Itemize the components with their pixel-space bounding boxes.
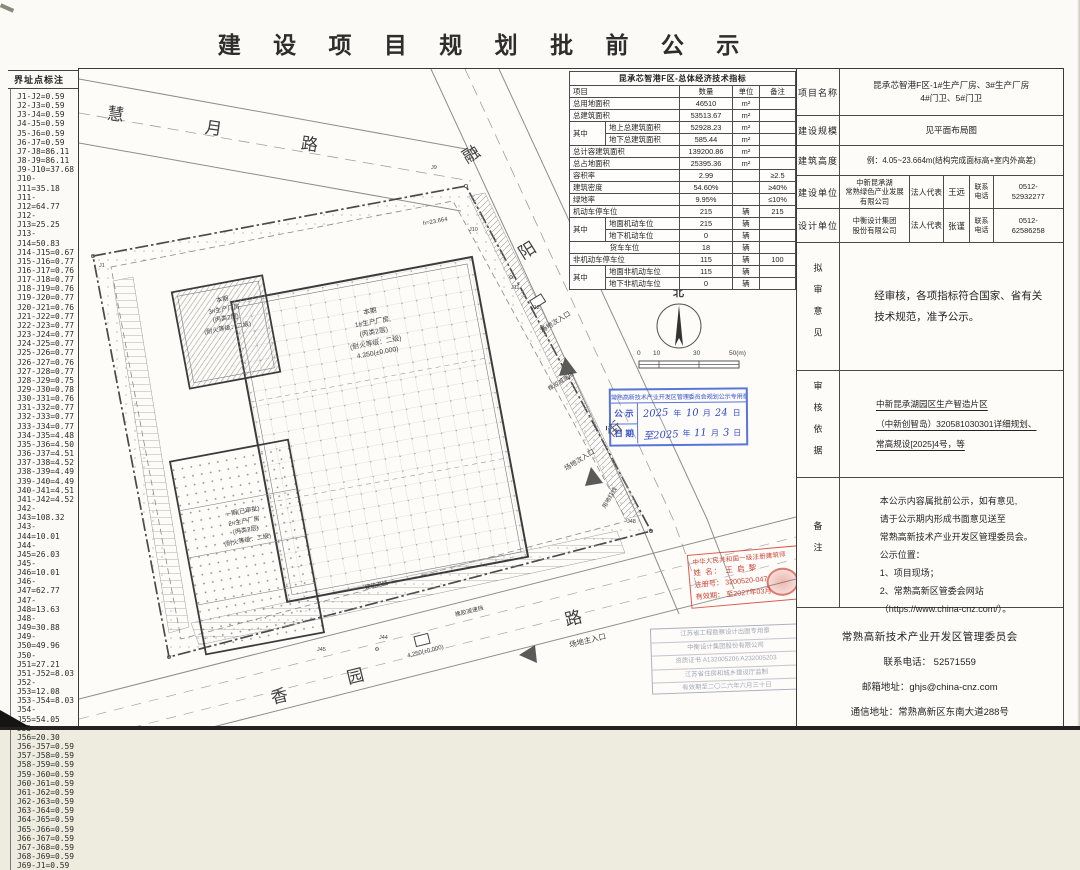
boundary-list-lines: J1-J2=0.59 J2-J3=0.59 J3-J4=0.59 J4-J5=0… <box>10 89 78 870</box>
boundary-point: J12 <box>531 305 540 311</box>
road-name-rongyang-jie: 阳 <box>515 238 540 264</box>
sheet-frame: 慧月路融阳街香园路北0103050(m)本期 1#生产厂房 (丙类2层) (耐火… <box>78 68 1064 730</box>
economic-indicator-table: 昆承芯智港F区-总体经济技术指标项目数量单位备注总用地面积46510m²总建筑面… <box>569 71 796 290</box>
eco-table-cell: 地下非机动车位 <box>605 278 679 290</box>
remark-text: 本公示内容属批前公示，如有意见, 请于公示期内形成书面意见送至 常熟高新技术产业… <box>840 478 1063 607</box>
setback-line-label: 建筑退线 <box>365 581 389 592</box>
speed-bump-label: 橡胶减速挡 <box>455 606 485 619</box>
scale-value: 见平面布局图 <box>840 116 1063 145</box>
eco-table-cell: 辆 <box>732 278 759 290</box>
eco-table-cell <box>759 242 795 254</box>
eco-table-cell <box>759 266 795 278</box>
eco-table-cell: 总占地面积 <box>569 158 679 170</box>
eco-table-cell: 机动车停车位 <box>569 206 679 218</box>
owner-label: 建设单位 <box>797 176 840 208</box>
road-name-xiangyuan-lu: 香 <box>269 685 290 708</box>
eco-table-cell: 其中 <box>569 266 605 290</box>
eco-table-cell: m² <box>732 146 759 158</box>
boundary-point: J48 <box>627 519 636 525</box>
eco-table-cell <box>759 110 795 122</box>
boundary-list-header: 界址点标注 <box>8 70 78 89</box>
eco-table-cell: 其中 <box>569 218 605 242</box>
opinion-label: 拟审意见 <box>797 243 840 370</box>
building-3-label: 本期 3#生产厂房 (丙类2层) (耐火等级：二级) <box>186 289 264 340</box>
eco-table-cell: 115 <box>679 266 732 278</box>
boundary-point: J44 <box>379 635 388 641</box>
eco-table-cell: 54.60% <box>679 182 732 194</box>
scanned-notice: { "title": "建 设 项 目 规 划 批 前 公 示", "bound… <box>0 0 1080 730</box>
eco-table-cell: 辆 <box>732 230 759 242</box>
opinion-text: 经审核，各项指标符合国家、省有关 技术规范，准予公示。 <box>840 243 1063 370</box>
eco-table-cell: 215 <box>679 206 732 218</box>
row-footer-contact: 常熟高新技术产业开发区管理委员会 联系电话： 52571559 邮箱地址：ghj… <box>797 608 1063 729</box>
eco-table-cell: 总计容建筑面积 <box>569 146 679 158</box>
project-name-label: 项目名称 <box>797 69 840 115</box>
eco-table-cell: m² <box>732 98 759 110</box>
road-name-rongyang-jie: 融 <box>459 142 484 168</box>
eco-table-cell: 100 <box>759 254 795 266</box>
notice-start-date: 2025年 10月 24日 <box>638 402 746 423</box>
boundary-point: J10 <box>469 227 478 233</box>
designer-rep-label: 法人代表 <box>910 209 944 242</box>
eco-table-cell: 地面机动车位 <box>605 218 679 230</box>
eco-table-cell: 建筑密度 <box>569 182 679 194</box>
road-name-xiangyuan-lu: 园 <box>345 665 366 688</box>
scan-edge-bottom <box>0 726 1080 730</box>
building-2-label: 一期(已审批) 2#生产厂房 (丙类2层) (耐火等级：二级) <box>194 498 295 553</box>
eco-table-cell: 项目 <box>569 86 679 98</box>
public-notice-stamp: 常熟高新技术产业开发区管理委员会规划公示专用章 公 示 日 期 2025年 10… <box>609 387 749 446</box>
eco-table-cell: 单位 <box>732 86 759 98</box>
owner-tel-label: 联系 电话 <box>970 176 994 208</box>
eco-table-cell: 辆 <box>732 254 759 266</box>
scale-tick: 0 <box>637 350 641 357</box>
eco-table-cell <box>759 98 795 110</box>
boundary-point: J11 <box>511 285 519 291</box>
boundary-point-list: 界址点标注 J1-J2=0.59 J2-J3=0.59 J3-J4=0.59 J… <box>8 70 78 870</box>
eco-table-cell <box>759 218 795 230</box>
road-name-huiyue-lu: 路 <box>300 134 320 156</box>
eco-table-cell: 辆 <box>732 218 759 230</box>
building-1-label: 本期 1#生产厂房 (丙类2层) (耐火等级：二级) 4.250(±0.000) <box>315 297 433 369</box>
stamp-label-riqi: 日 期 <box>611 424 637 444</box>
owner-rep-label: 法人代表 <box>910 176 944 208</box>
eco-table-cell: 18 <box>679 242 732 254</box>
eco-table-cell: 53513.67 <box>679 110 732 122</box>
eco-table-cell: 总建筑面积 <box>569 110 679 122</box>
scan-corner-fold <box>0 710 30 727</box>
boundary-point: J1 <box>99 263 105 269</box>
eco-table-cell: 辆 <box>732 242 759 254</box>
scan-top-fold <box>0 3 14 12</box>
authority-contact: 联系电话： 52571559 邮箱地址：ghjs@china-cnz.com 通… <box>851 650 1009 725</box>
eco-table-cell <box>759 146 795 158</box>
row-designer: 设计单位 中衡设计集团 股份有限公司 法人代表 张谨 联系 电话 0512- 6… <box>797 209 1063 243</box>
height-note: h≈23.664 <box>423 217 449 228</box>
row-review-opinion: 拟审意见 经审核，各项指标符合国家、省有关 技术规范，准予公示。 <box>797 243 1063 371</box>
eco-table-cell: 139200.86 <box>679 146 732 158</box>
row-remark: 备注 本公示内容属批前公示，如有意见, 请于公示期内形成书面意见送至 常熟高新技… <box>797 478 1063 608</box>
notice-end-date: 至2025年 11月 3日 <box>638 422 746 443</box>
eco-table-cell: 地面非机动车位 <box>605 266 679 278</box>
eco-table-cell: ≥40% <box>759 182 795 194</box>
authority-name: 常熟高新技术产业开发区管理委员会 <box>842 624 1018 650</box>
designer-company: 中衡设计集团 股份有限公司 <box>840 209 910 242</box>
eco-table-cell <box>732 170 759 182</box>
eco-table-cell: 其中 <box>569 122 605 146</box>
elevation-note: 4.250(±0.000) <box>407 645 445 661</box>
eco-table-cell: 地上总建筑面积 <box>605 122 679 134</box>
owner-tel: 0512- 52932277 <box>994 176 1063 208</box>
scale-tick: 30 <box>693 350 700 357</box>
road-name-huiyue-lu: 月 <box>204 118 224 140</box>
eco-table-cell <box>732 194 759 206</box>
owner-rep-name: 王远 <box>944 176 970 208</box>
boundary-point: J9 <box>431 165 437 171</box>
eco-table-cell <box>759 122 795 134</box>
row-review-basis: 审核依据 中新昆承湖园区生产智造片区 （中新创智岛）320581030301详细… <box>797 371 1063 478</box>
remark-label: 备注 <box>797 478 840 607</box>
architect-stamp: 中华人民共和国一级注册建筑师 姓 名： 王 启 黎 注册号： 3200520-0… <box>687 545 796 609</box>
site-plan: 慧月路融阳街香园路北0103050(m)本期 1#生产厂房 (丙类2层) (耐火… <box>79 69 796 729</box>
eco-table-cell: m² <box>732 158 759 170</box>
designer-rep-name: 张谨 <box>944 209 970 242</box>
eco-table-cell: 备注 <box>759 86 795 98</box>
designer-label: 设计单位 <box>797 209 840 242</box>
height-label: 建筑高度 <box>797 146 840 175</box>
eco-table-cell: 25395.36 <box>679 158 732 170</box>
secondary-entrance-label: 场地次入口 <box>564 449 597 474</box>
eco-table-cell: 总用地面积 <box>569 98 679 110</box>
eco-table-cell: ≥2.5 <box>759 170 795 182</box>
road-name-huiyue-lu: 慧 <box>106 104 126 126</box>
speed-bump-label: 橡胶减速挡 <box>547 372 575 393</box>
eco-table-cell: 0 <box>679 230 732 242</box>
eco-table-cell: 辆 <box>732 266 759 278</box>
eco-table-cell: m² <box>732 122 759 134</box>
design-institute-stamp: 江苏省工程勘察设计出图专用章 中衡设计集团股份有限公司 资质证书 A132005… <box>650 623 796 694</box>
eco-table-cell <box>759 134 795 146</box>
project-name-value: 昆承芯智港F区-1#生产厂房、3#生产厂房 4#门卫、5#门卫 <box>840 69 1063 115</box>
row-construction-scale: 建设规模 见平面布局图 <box>797 116 1063 146</box>
row-building-height: 建筑高度 例：4.05~23.664m(结构完成面标高+室内外高差) <box>797 146 1063 176</box>
boundary-point: J45 <box>317 647 326 653</box>
row-owner: 建设单位 中新昆承湖 常熟绿色产业发展 有限公司 法人代表 王远 联系 电话 0… <box>797 176 1063 209</box>
eco-table-cell: ≤10% <box>759 194 795 206</box>
red-line-label: 用地红线 <box>602 487 619 510</box>
eco-table-cell <box>732 182 759 194</box>
page-title: 建 设 项 目 规 划 批 前 公 示 <box>0 26 970 60</box>
eco-table-cell <box>759 230 795 242</box>
stamp-header: 常熟高新技术产业开发区管理委员会规划公示专用章 <box>611 389 746 403</box>
eco-table-cell: 非机动车停车位 <box>569 254 679 266</box>
eco-table-cell: 46510 <box>679 98 732 110</box>
designer-tel-label: 联系 电话 <box>970 209 994 242</box>
eco-table-cell: 215 <box>759 206 795 218</box>
basis-text: 中新昆承湖园区生产智造片区 （中新创智岛）320581030301详细规划、 常… <box>840 371 1063 477</box>
road-name-xiangyuan-lu: 路 <box>563 607 584 630</box>
scale-tick: 50(m) <box>729 350 746 357</box>
eco-table-cell: 115 <box>679 254 732 266</box>
eco-table-cell: m² <box>732 110 759 122</box>
eco-table-cell: 地下总建筑面积 <box>605 134 679 146</box>
basis-label: 审核依据 <box>797 371 840 477</box>
height-value: 例：4.05~23.664m(结构完成面标高+室内外高差) <box>840 146 1063 175</box>
eco-table-cell <box>759 278 795 290</box>
scale-label: 建设规模 <box>797 116 840 145</box>
scale-tick: 10 <box>653 350 660 357</box>
plan-notice-sheet: 建 设 项 目 规 划 批 前 公 示 界址点标注 J1-J2=0.59 J2-… <box>0 0 1080 730</box>
eco-table-cell: 215 <box>679 218 732 230</box>
eco-table-cell: 辆 <box>732 206 759 218</box>
eco-table-cell: 容积率 <box>569 170 679 182</box>
eco-table-cell <box>759 158 795 170</box>
stamp-label-gongshi: 公 示 <box>611 403 637 424</box>
eco-table-cell: 地下机动车位 <box>605 230 679 242</box>
main-entrance-label: 场地主入口 <box>569 633 607 650</box>
eco-table-cell: 585.44 <box>679 134 732 146</box>
designer-tel: 0512- 62586258 <box>994 209 1063 242</box>
owner-company: 中新昆承湖 常熟绿色产业发展 有限公司 <box>840 176 910 208</box>
eco-table-cell: 0 <box>679 278 732 290</box>
eco-table-cell: 货车车位 <box>569 242 679 254</box>
eco-table-cell: 9.95% <box>679 194 732 206</box>
eco-table-cell: 52928.23 <box>679 122 732 134</box>
row-project-name: 项目名称 昆承芯智港F区-1#生产厂房、3#生产厂房 4#门卫、5#门卫 <box>797 69 1063 116</box>
eco-table-cell: 数量 <box>679 86 732 98</box>
eco-table-cell: 绿地率 <box>569 194 679 206</box>
secondary-entrance-label: 场地次入口 <box>540 311 573 336</box>
eco-table-cell: m² <box>732 134 759 146</box>
info-panel: 项目名称 昆承芯智港F区-1#生产厂房、3#生产厂房 4#门卫、5#门卫 建设规… <box>796 69 1063 729</box>
eco-table-cell: 昆承芯智港F区-总体经济技术指标 <box>569 72 795 86</box>
eco-table-cell: 2.99 <box>679 170 732 182</box>
